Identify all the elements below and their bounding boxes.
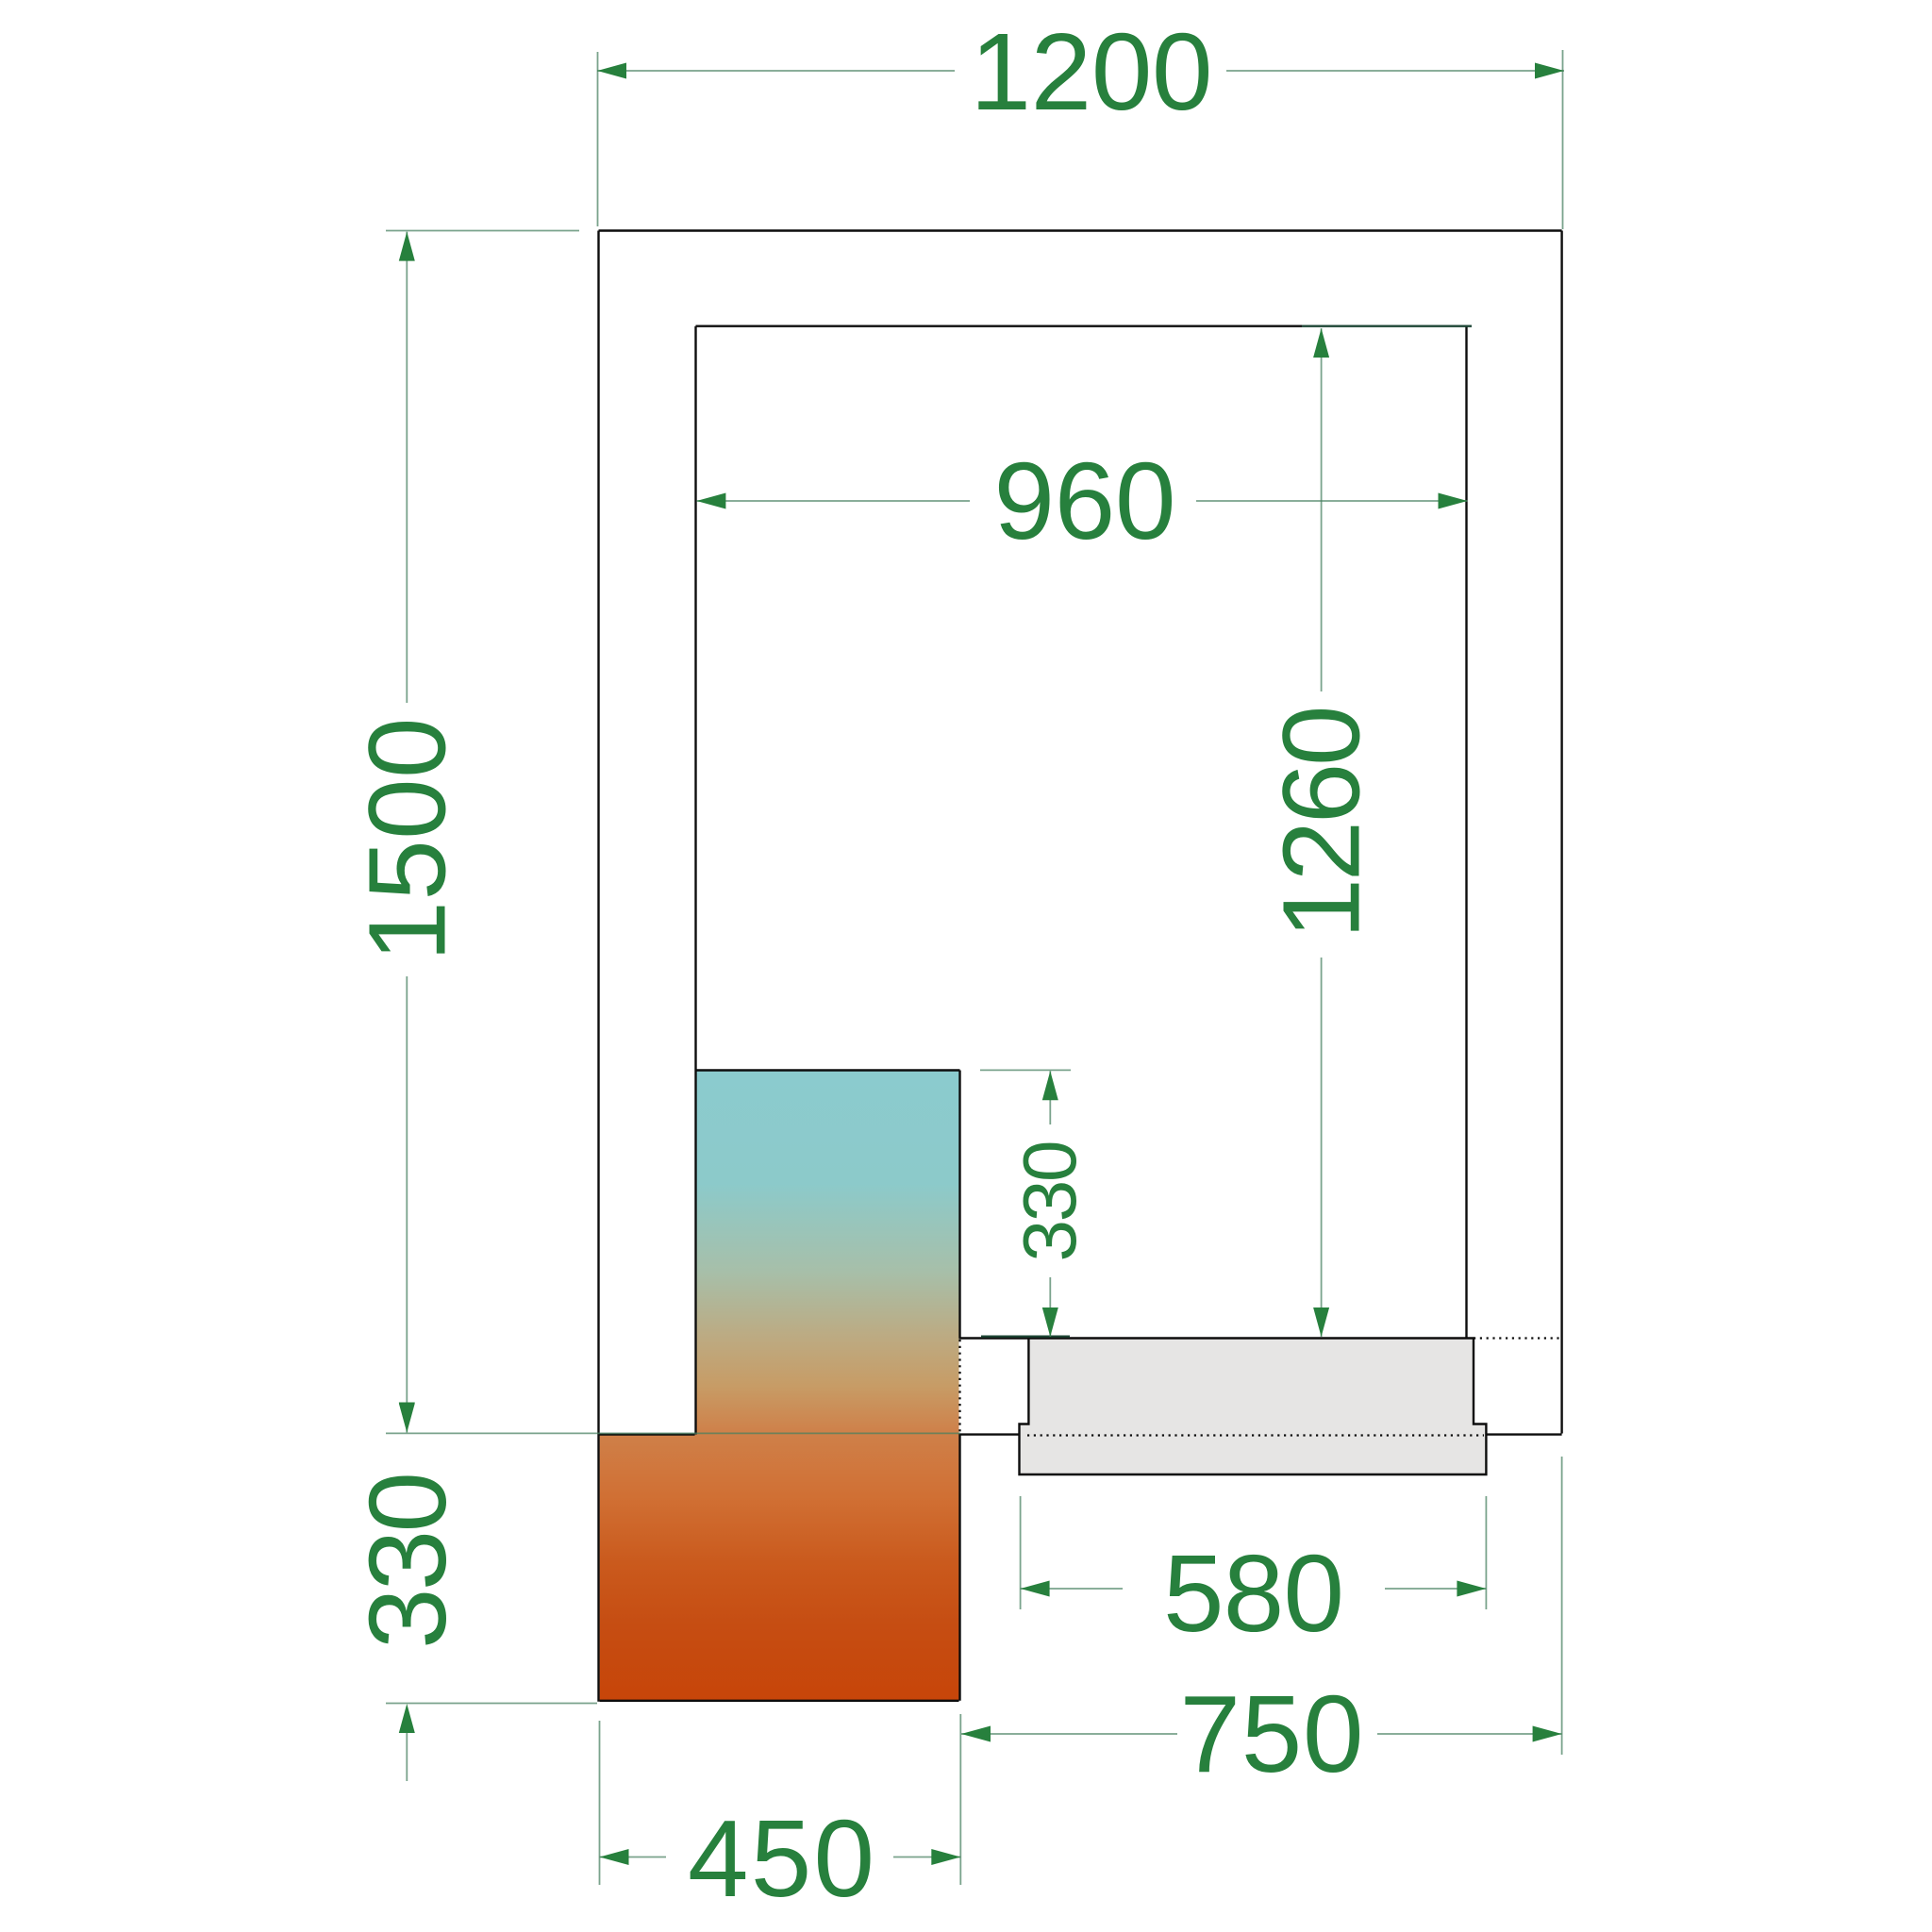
svg-text:750: 750: [1180, 1673, 1364, 1795]
svg-text:450: 450: [688, 1797, 874, 1920]
svg-text:1500: 1500: [345, 718, 468, 962]
svg-text:1260: 1260: [1260, 706, 1383, 940]
svg-text:330: 330: [1008, 1141, 1091, 1262]
svg-text:330: 330: [346, 1472, 469, 1649]
svg-text:960: 960: [994, 440, 1176, 562]
svg-text:1200: 1200: [971, 10, 1213, 133]
svg-text:580: 580: [1163, 1532, 1344, 1655]
